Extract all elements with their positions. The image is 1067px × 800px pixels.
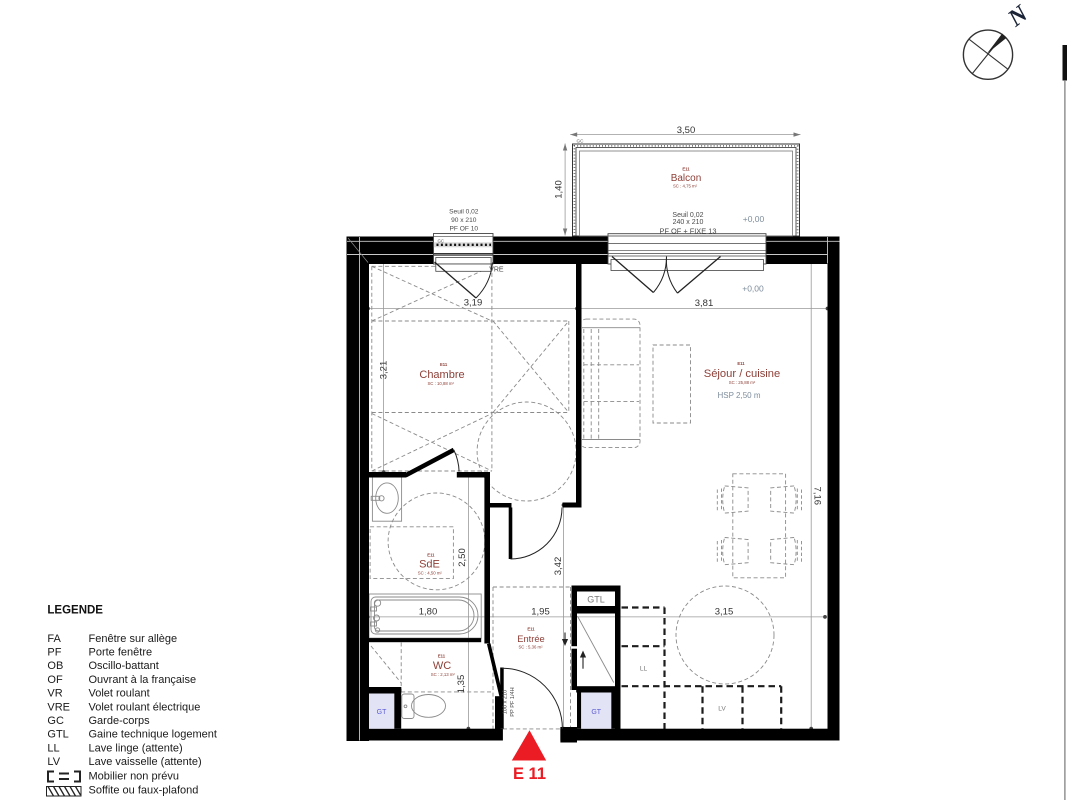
svg-text:SC : 25,88 m²: SC : 25,88 m² <box>729 380 756 385</box>
svg-text:Chambre: Chambre <box>419 369 464 381</box>
svg-text:LEGENDE: LEGENDE <box>47 605 103 617</box>
svg-text:E11: E11 <box>427 553 435 558</box>
svg-text:E11: E11 <box>438 654 446 659</box>
svg-text:HSP 2,50 m: HSP 2,50 m <box>718 391 761 400</box>
svg-text:Séjour / cuisine: Séjour / cuisine <box>704 368 781 380</box>
svg-text:SC : 4,50 m²: SC : 4,50 m² <box>418 570 443 575</box>
svg-text:PF OF + FIXE 13: PF OF + FIXE 13 <box>660 227 717 236</box>
svg-text:GTL: GTL <box>47 729 68 741</box>
svg-text:Oscillo-battant: Oscillo-battant <box>89 660 159 672</box>
svg-text:90 x 210: 90 x 210 <box>451 217 477 224</box>
svg-text:SC : 2,13 m²: SC : 2,13 m² <box>431 672 456 677</box>
svg-text:240 x 210: 240 x 210 <box>673 219 704 226</box>
svg-text:GC: GC <box>47 715 64 727</box>
svg-text:LL: LL <box>640 666 648 673</box>
svg-text:VRE: VRE <box>47 701 70 713</box>
svg-text:Volet roulant électrique: Volet roulant électrique <box>89 701 201 713</box>
svg-text:OB: OB <box>47 660 63 672</box>
svg-text:Balcon: Balcon <box>671 173 702 184</box>
svg-text:E11: E11 <box>440 362 448 367</box>
svg-text:GC: GC <box>438 238 445 243</box>
svg-text:GT: GT <box>591 709 601 716</box>
svg-text:1,80: 1,80 <box>419 607 438 618</box>
svg-text:PP PF 1/4H: PP PF 1/4H <box>510 687 516 716</box>
svg-text:E11: E11 <box>527 626 535 631</box>
svg-text:+0,00: +0,00 <box>742 284 764 294</box>
svg-text:E11: E11 <box>682 166 690 171</box>
svg-text:3,21: 3,21 <box>379 361 390 380</box>
svg-text:WC: WC <box>433 660 451 672</box>
svg-text:PF OF 10: PF OF 10 <box>450 226 479 233</box>
svg-text:Garde-corps: Garde-corps <box>89 715 151 727</box>
svg-text:SC : 10,88 m²: SC : 10,88 m² <box>427 381 454 386</box>
svg-text:OF: OF <box>47 674 63 686</box>
svg-text:PF: PF <box>47 647 61 659</box>
svg-text:3,81: 3,81 <box>695 298 714 309</box>
svg-text:2,50: 2,50 <box>457 548 468 567</box>
svg-text:Fenêtre sur allège: Fenêtre sur allège <box>89 633 178 645</box>
svg-text:+0,00: +0,00 <box>743 214 765 224</box>
svg-text:1,35: 1,35 <box>456 675 467 694</box>
svg-text:7,16: 7,16 <box>812 487 823 506</box>
svg-text:Entrée: Entrée <box>517 634 544 644</box>
svg-text:SC : 4,75 m²: SC : 4,75 m² <box>673 184 698 189</box>
svg-text:FA: FA <box>47 633 61 645</box>
svg-text:GC: GC <box>577 139 585 144</box>
svg-text:Lave vaisselle (attente): Lave vaisselle (attente) <box>89 756 202 768</box>
svg-text:Ouvrant à la française: Ouvrant à la française <box>89 674 197 686</box>
svg-text:SdE: SdE <box>419 559 440 571</box>
svg-text:LV: LV <box>47 756 60 768</box>
svg-text:SC : 5,36 m²: SC : 5,36 m² <box>518 644 543 649</box>
svg-text:Seuil 0,02: Seuil 0,02 <box>672 212 703 219</box>
svg-text:3,42: 3,42 <box>553 557 564 576</box>
svg-text:E11: E11 <box>737 361 745 366</box>
svg-text:Seuil 0,02: Seuil 0,02 <box>449 209 479 216</box>
svg-text:VR: VR <box>47 688 62 700</box>
svg-text:Lave linge (attente): Lave linge (attente) <box>89 742 183 754</box>
svg-text:Porte fenêtre: Porte fenêtre <box>89 647 153 659</box>
svg-text:3,15: 3,15 <box>715 607 734 618</box>
svg-text:1,40: 1,40 <box>554 180 565 199</box>
svg-text:LV: LV <box>718 706 726 713</box>
svg-text:Volet roulant: Volet roulant <box>89 688 150 700</box>
svg-text:E 11: E 11 <box>513 765 546 783</box>
svg-text:VRE: VRE <box>489 267 504 274</box>
svg-text:Soffite ou faux-plafond: Soffite ou faux-plafond <box>89 785 199 797</box>
svg-text:1,95: 1,95 <box>531 607 550 618</box>
svg-text:100 x 210: 100 x 210 <box>503 690 509 715</box>
svg-text:GT: GT <box>377 709 387 716</box>
svg-text:Mobilier non prévu: Mobilier non prévu <box>89 771 180 783</box>
svg-text:GTL: GTL <box>587 595 605 605</box>
svg-text:LL: LL <box>47 742 59 754</box>
svg-text:3,50: 3,50 <box>677 125 696 136</box>
svg-text:3,19: 3,19 <box>464 298 483 309</box>
svg-text:Gaine technique logement: Gaine technique logement <box>89 729 217 741</box>
